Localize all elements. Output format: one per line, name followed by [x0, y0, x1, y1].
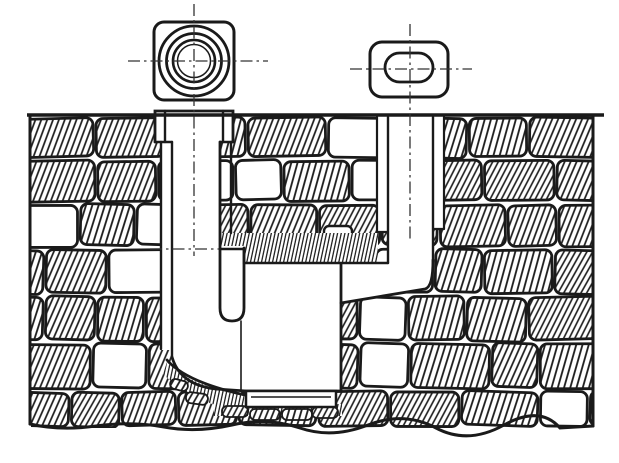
- masonry-stone: [98, 297, 144, 341]
- masonry-stone: [440, 205, 506, 247]
- masonry-stone: [411, 343, 490, 389]
- masonry-stone: [4, 205, 77, 247]
- masonry-stone: [46, 249, 107, 293]
- masonry-stone: [7, 392, 69, 427]
- oval-cover-lid: [385, 53, 433, 82]
- dip-baffle-body: [220, 246, 244, 321]
- masonry-stone: [469, 118, 526, 157]
- masonry-stone: [121, 391, 176, 426]
- masonry-stone: [484, 250, 552, 294]
- masonry-stone: [0, 296, 43, 340]
- masonry-stone: [359, 297, 406, 341]
- masonry-stone: [491, 343, 538, 388]
- drawing-page: Sectional technical drawing of a masonry…: [0, 0, 619, 463]
- masonry-stone: [284, 161, 349, 201]
- masonry-stone: [98, 161, 156, 202]
- masonry-stone: [235, 159, 281, 200]
- pipe-right-sleeve: [433, 113, 444, 229]
- masonry-stone: [360, 342, 409, 387]
- masonry-stone: [484, 160, 554, 200]
- masonry-stone: [45, 296, 95, 341]
- masonry-stone: [559, 205, 619, 247]
- masonry-stone: [80, 203, 134, 245]
- base-slab: [246, 391, 336, 407]
- masonry-stone: [540, 391, 587, 427]
- masonry-stone: [555, 250, 619, 295]
- masonry-stone: [248, 117, 326, 157]
- masonry-stone: [467, 297, 527, 342]
- masonry-stone: [529, 117, 612, 158]
- masonry-stone: [508, 205, 557, 247]
- masonry-stone: [408, 296, 464, 340]
- masonry-stone: [557, 160, 619, 201]
- masonry-stone: [93, 343, 147, 388]
- masonry-stone: [435, 248, 482, 292]
- technical-drawing: Sectional technical drawing of a masonry…: [0, 0, 619, 463]
- base-slab-outline: [246, 391, 336, 407]
- masonry-stone: [461, 390, 538, 426]
- masonry-stone: [391, 392, 459, 427]
- masonry-stone: [17, 118, 94, 158]
- masonry-stone: [71, 392, 119, 428]
- masonry-stone: [540, 344, 619, 389]
- masonry-stone: [0, 249, 44, 294]
- masonry-stone: [24, 345, 90, 390]
- masonry-stone: [21, 160, 96, 202]
